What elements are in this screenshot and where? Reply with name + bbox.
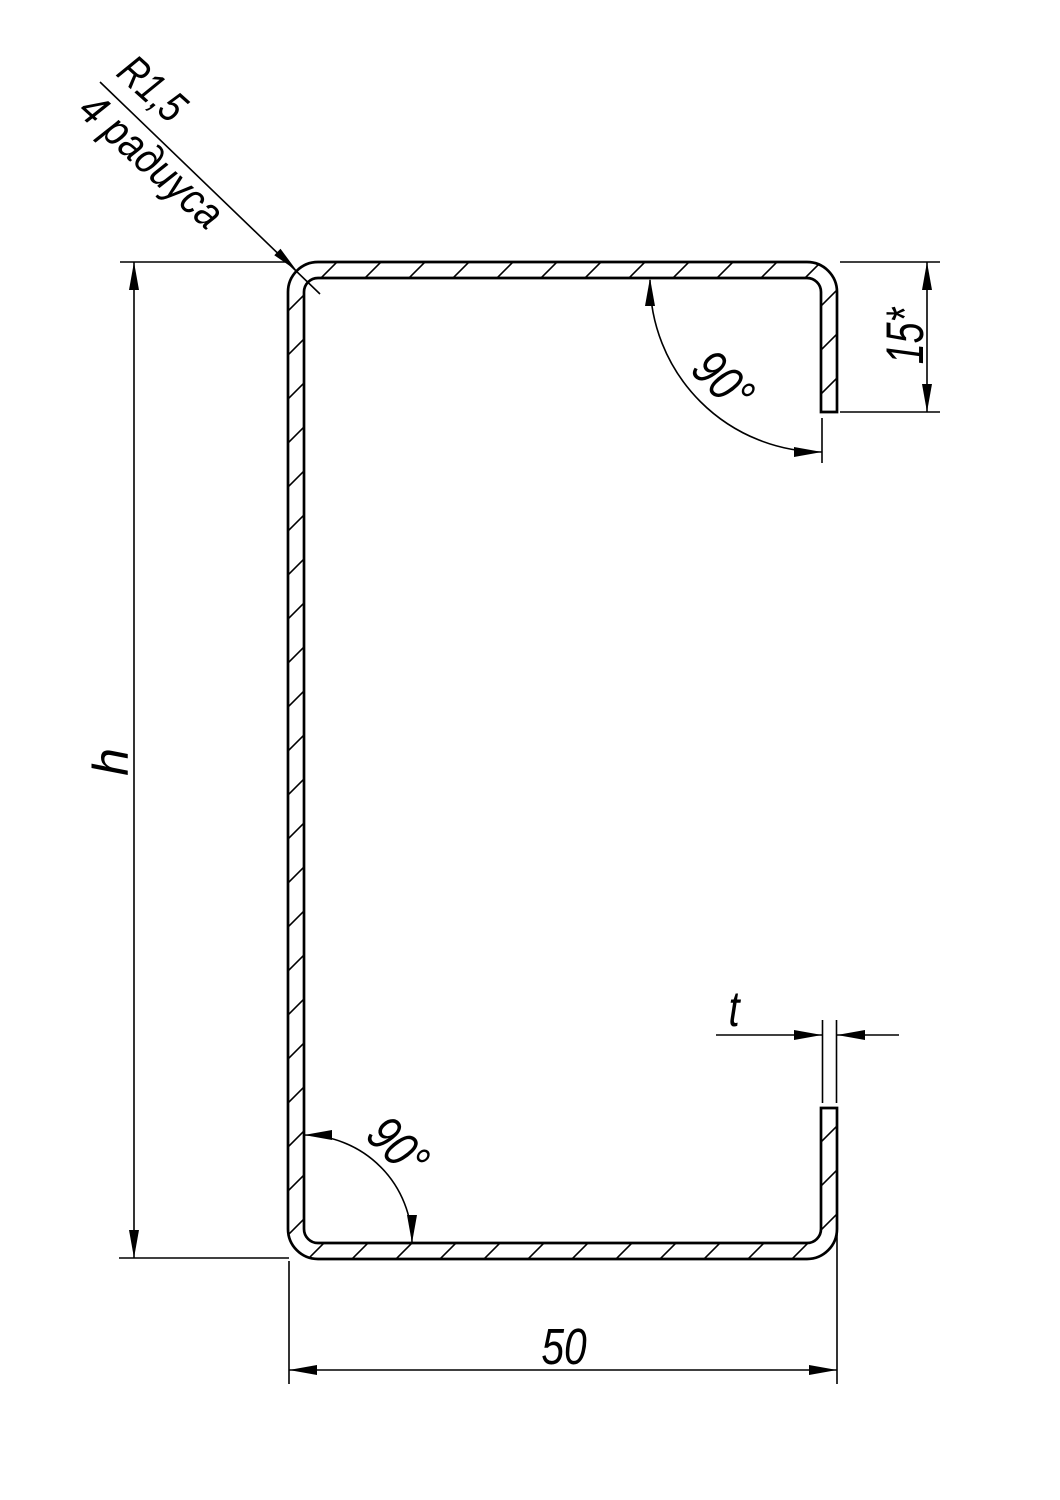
svg-text:50: 50: [541, 1318, 587, 1375]
svg-text:15*: 15*: [875, 306, 935, 364]
svg-text:h: h: [83, 748, 139, 776]
